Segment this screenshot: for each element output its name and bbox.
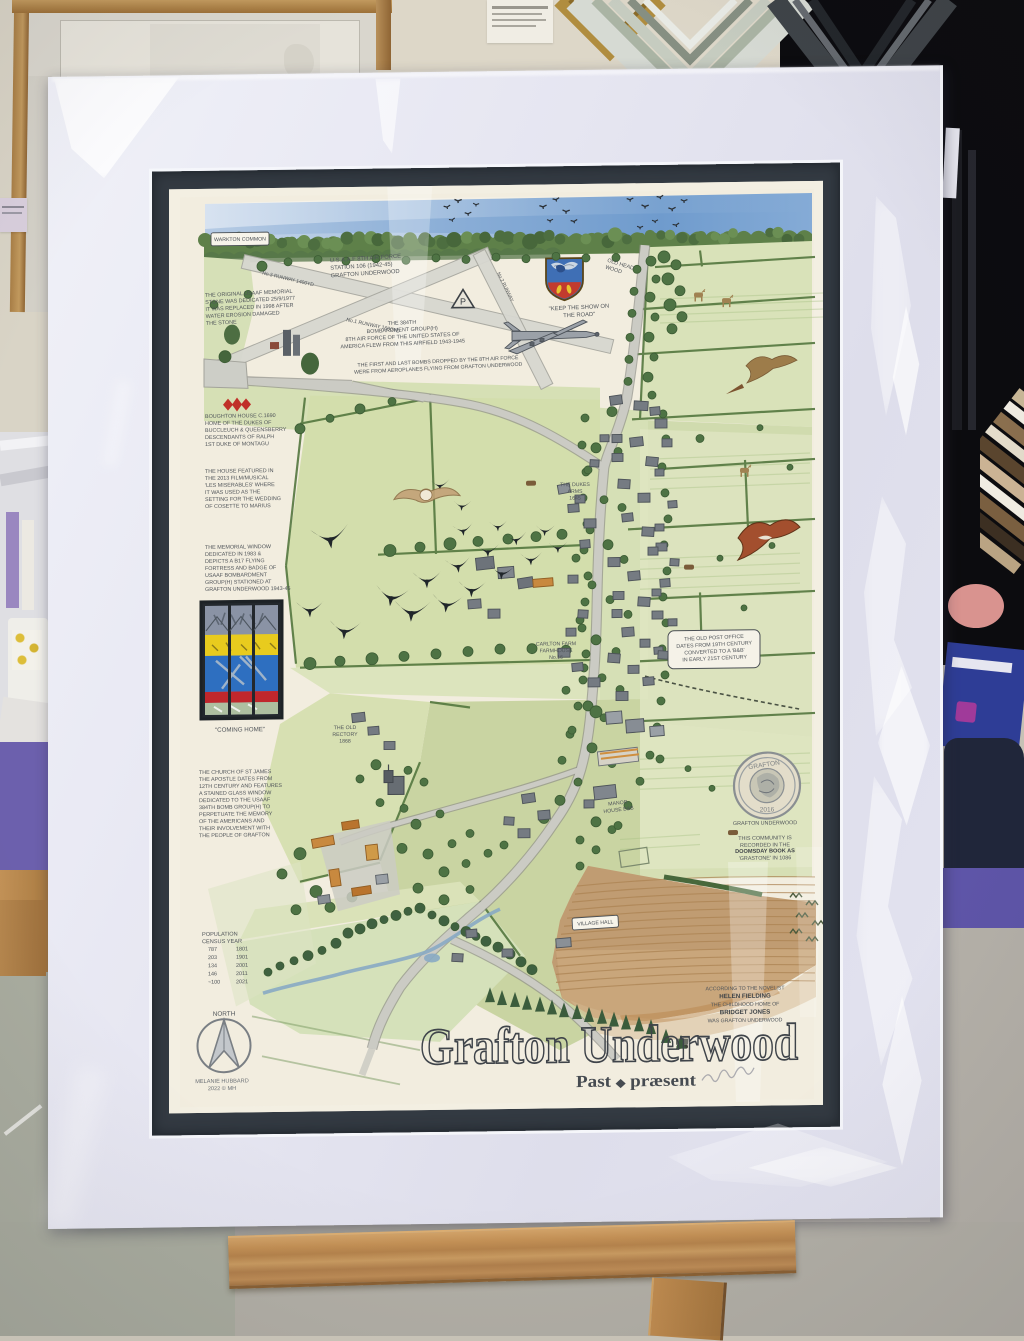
svg-text:RECTORY: RECTORY — [332, 732, 358, 738]
svg-text:DOOMSDAY BOOK AS: DOOMSDAY BOOK AS — [735, 848, 795, 855]
svg-text:BUCCLEUCH & QUEENSBERRY: BUCCLEUCH & QUEENSBERRY — [205, 427, 287, 434]
svg-text:DESCENDANTS OF RALPH: DESCENDANTS OF RALPH — [205, 434, 274, 441]
svg-text:FORTRESS AND BADGE OF: FORTRESS AND BADGE OF — [205, 565, 277, 572]
svg-text:GRAFTON UNDERWOOD: GRAFTON UNDERWOOD — [733, 820, 797, 827]
svg-text:HOME OF THE DUKES OF: HOME OF THE DUKES OF — [205, 420, 272, 427]
svg-text:1645: 1645 — [569, 496, 581, 502]
svg-text:GRAFTON UNDERWOOD 1943-45: GRAFTON UNDERWOOD 1943-45 — [205, 586, 290, 593]
svg-text:P: P — [460, 297, 466, 307]
svg-text:DEPICTS A B17 FLYING: DEPICTS A B17 FLYING — [205, 558, 265, 565]
svg-text:ACCORDING TO THE NOVELIST: ACCORDING TO THE NOVELIST — [706, 985, 786, 992]
svg-text:CARLTON FARM: CARLTON FARM — [536, 641, 576, 648]
svg-text:'GRASTONE' IN 1086: 'GRASTONE' IN 1086 — [739, 855, 792, 862]
svg-text:USAAF BOMBARDMENT: USAAF BOMBARDMENT — [205, 572, 268, 579]
svg-text:BOUGHTON HOUSE C.1690: BOUGHTON HOUSE C.1690 — [205, 413, 276, 420]
svg-text:'LES MISERABLES' WHERE: 'LES MISERABLES' WHERE — [205, 482, 275, 489]
svg-text:134: 134 — [208, 963, 217, 969]
svg-text:"COMING HOME": "COMING HOME" — [215, 726, 265, 734]
svg-text:WARKTON COMMON: WARKTON COMMON — [214, 236, 266, 243]
svg-text:THEIR INVOLVEMENT WITH: THEIR INVOLVEMENT WITH — [199, 825, 270, 832]
svg-text:OF COSETTE TO MARIUS: OF COSETTE TO MARIUS — [205, 503, 271, 510]
svg-text:CENSUS YEAR: CENSUS YEAR — [202, 939, 242, 946]
svg-text:NORTH: NORTH — [213, 1011, 236, 1018]
svg-text:ARMS: ARMS — [568, 489, 584, 495]
svg-text:SETTING FOR THE WEDDING: SETTING FOR THE WEDDING — [205, 496, 281, 503]
svg-text:1ST DUKE OF MONTAGU: 1ST DUKE OF MONTAGU — [205, 441, 269, 448]
svg-text:THE OLD: THE OLD — [334, 725, 357, 731]
svg-text:146: 146 — [208, 971, 217, 977]
svg-text:GROUP(H) STATIONED AT: GROUP(H) STATIONED AT — [205, 579, 272, 586]
svg-text:2011: 2011 — [236, 971, 248, 977]
svg-text:12TH CENTURY AND FEATURES: 12TH CENTURY AND FEATURES — [199, 783, 282, 790]
svg-text:THIS COMMUNITY IS: THIS COMMUNITY IS — [738, 835, 792, 842]
svg-text:A STAINED GLASS WINDOW: A STAINED GLASS WINDOW — [199, 790, 272, 797]
svg-text:DEDICATED TO THE USAAF: DEDICATED TO THE USAAF — [199, 797, 271, 804]
svg-text:FARMHOUSE: FARMHOUSE — [540, 648, 573, 654]
svg-text:Past ◆ præsent: Past ◆ præsent — [576, 1071, 696, 1092]
svg-text:1868: 1868 — [339, 739, 351, 745]
svg-text:OF THE AMERICANS AND: OF THE AMERICANS AND — [199, 818, 265, 825]
svg-text:203: 203 — [208, 955, 217, 961]
svg-text:THE 2013 FILM/MUSICAL: THE 2013 FILM/MUSICAL — [205, 475, 269, 482]
svg-text:THE MEMORIAL WINDOW: THE MEMORIAL WINDOW — [205, 544, 272, 551]
svg-text:THE PEOPLE OF GRAFTON: THE PEOPLE OF GRAFTON — [199, 832, 270, 839]
svg-text:2001: 2001 — [236, 963, 248, 969]
svg-text:2021: 2021 — [236, 979, 248, 985]
svg-text:MELANIE HUBBARD: MELANIE HUBBARD — [195, 1078, 248, 1085]
svg-text:No.16: No.16 — [549, 655, 563, 661]
svg-text:IT WAS USED AS THE: IT WAS USED AS THE — [205, 489, 261, 496]
svg-text:THE CHILDHOOD HOME OF: THE CHILDHOOD HOME OF — [711, 1001, 780, 1008]
svg-text:1801: 1801 — [236, 946, 248, 952]
svg-text:THE DUKES: THE DUKES — [560, 482, 590, 488]
svg-text:HELEN FIELDING: HELEN FIELDING — [719, 993, 771, 1001]
svg-text:THE APOSTLE DATES FROM: THE APOSTLE DATES FROM — [199, 776, 273, 783]
svg-text:DEDICATED IN 1983 &: DEDICATED IN 1983 & — [205, 551, 262, 558]
svg-text:~100: ~100 — [208, 980, 220, 986]
svg-text:787: 787 — [208, 947, 217, 953]
svg-text:2016: 2016 — [760, 806, 775, 813]
svg-text:POPULATION: POPULATION — [202, 932, 238, 938]
svg-text:1901: 1901 — [236, 955, 248, 961]
svg-text:PERPETUATE THE MEMORY: PERPETUATE THE MEMORY — [199, 811, 273, 818]
svg-text:THE CHURCH OF ST JAMES: THE CHURCH OF ST JAMES — [199, 769, 272, 776]
svg-text:2022 © MH: 2022 © MH — [208, 1085, 236, 1092]
svg-text:384TH BOMB GROUP(H) TO: 384TH BOMB GROUP(H) TO — [199, 804, 270, 811]
svg-text:THE HOUSE FEATURED IN: THE HOUSE FEATURED IN — [205, 468, 274, 475]
